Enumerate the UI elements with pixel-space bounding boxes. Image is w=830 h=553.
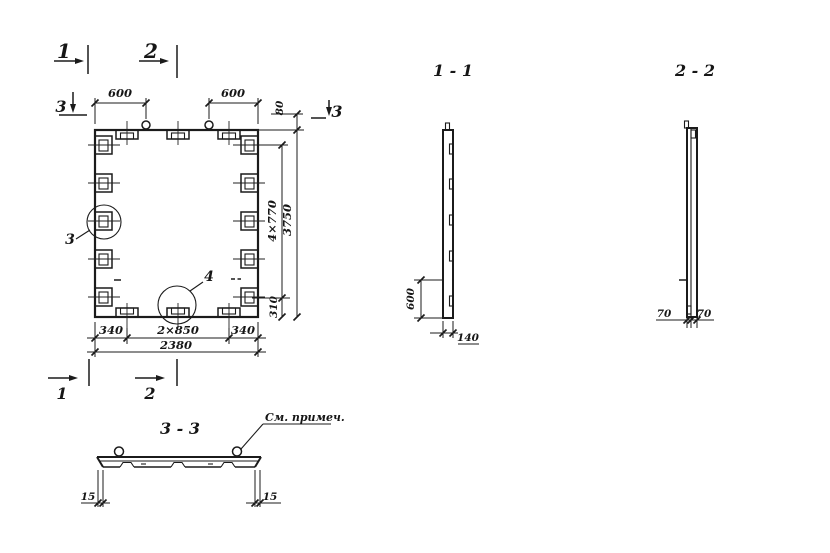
bottom-notch bbox=[221, 463, 235, 468]
plan-view: 3 4 600 600 bbox=[48, 39, 343, 403]
lifting-loop-icon bbox=[115, 447, 124, 456]
dim-4x770: 4×770 bbox=[265, 200, 279, 242]
marker-label: 2 bbox=[143, 384, 155, 403]
edge-insert bbox=[88, 212, 120, 230]
edge-insert bbox=[88, 174, 120, 192]
dim-600-left: 600 bbox=[108, 86, 132, 100]
lifting-loop-icon bbox=[142, 121, 150, 129]
note-text: См. примеч. bbox=[265, 411, 345, 424]
marker-label: 2 bbox=[143, 39, 158, 63]
insert-notch bbox=[167, 121, 189, 145]
drawing-sheet: 3 4 600 600 bbox=[0, 0, 830, 553]
panel-outline bbox=[95, 130, 258, 317]
marker-label: 3 bbox=[55, 97, 66, 116]
plan-right-dimensions: 80 4×770 3750 310 bbox=[252, 100, 304, 320]
section-view-2-2: 2 - 2 70 70 bbox=[656, 61, 715, 328]
top-edge-inserts bbox=[116, 121, 240, 145]
dim-2380: 2380 bbox=[159, 338, 192, 352]
arrow-down-icon bbox=[70, 104, 76, 113]
section-marker-2-bottom: 2 bbox=[135, 359, 177, 403]
edge-insert bbox=[233, 212, 265, 230]
arrow-right-icon bbox=[160, 58, 169, 64]
dim-340-right: 340 bbox=[231, 323, 255, 337]
insert-notch bbox=[218, 121, 240, 145]
section-marker-3-right: 3 bbox=[311, 100, 343, 121]
dim-140: 140 bbox=[457, 332, 480, 344]
section-3-3-dimensions: 15 15 bbox=[81, 470, 281, 507]
section-view-1-1: 1 - 1 600 140 bbox=[405, 61, 480, 344]
edge-insert bbox=[88, 288, 120, 306]
dim-70-left: 70 bbox=[657, 308, 672, 320]
section-marker-3-left: 3 bbox=[55, 92, 87, 116]
dim-600: 600 bbox=[405, 287, 417, 310]
marker-label: 1 bbox=[56, 384, 67, 403]
marker-label: 3 bbox=[331, 102, 342, 121]
marker-label: 1 bbox=[57, 39, 71, 63]
insert-notch bbox=[116, 121, 138, 145]
note-leader: См. примеч. bbox=[241, 411, 345, 449]
edge-insert bbox=[233, 250, 265, 268]
drawing-canvas: 3 4 600 600 bbox=[0, 0, 830, 553]
section-3-3-body bbox=[97, 447, 261, 467]
section-title: 3 - 3 bbox=[160, 419, 200, 438]
dim-340-left: 340 bbox=[99, 323, 123, 337]
section-marker-1-top: 1 bbox=[54, 39, 88, 74]
dim-3750: 3750 bbox=[280, 204, 294, 236]
callout-label: 4 bbox=[204, 269, 214, 285]
section-title: 1 - 1 bbox=[433, 61, 473, 80]
lifting-loop-icon bbox=[233, 447, 242, 456]
callout-label: 3 bbox=[65, 232, 75, 248]
section-2-2-body bbox=[687, 128, 697, 317]
section-title: 2 - 2 bbox=[674, 61, 715, 80]
bottom-notch bbox=[171, 463, 185, 468]
bottom-notch bbox=[120, 463, 134, 468]
edge-insert bbox=[233, 288, 265, 306]
arrow-right-icon bbox=[69, 375, 78, 381]
dim-70-right: 70 bbox=[697, 308, 712, 320]
loop-stub bbox=[685, 121, 689, 128]
section-marker-2-top: 2 bbox=[139, 39, 177, 78]
plan-top-dimensions: 600 600 bbox=[92, 86, 262, 124]
dim-80: 80 bbox=[274, 100, 286, 115]
loop-stub bbox=[446, 123, 450, 130]
dim-2x850: 2×850 bbox=[156, 323, 199, 337]
dim-15-left: 15 bbox=[81, 491, 96, 503]
section-view-3-3: 3 - 3 См. примеч. bbox=[81, 411, 345, 507]
edge-insert bbox=[88, 136, 120, 154]
section-1-1-body bbox=[443, 130, 453, 318]
plan-bottom-dimensions: 340 2×850 340 2380 bbox=[87, 322, 266, 357]
dim-310: 310 bbox=[268, 295, 280, 318]
dim-15-right: 15 bbox=[263, 491, 278, 503]
section-marker-1-bottom: 1 bbox=[48, 359, 89, 403]
right-edge-inserts bbox=[233, 136, 265, 306]
arrow-right-icon bbox=[156, 375, 165, 381]
top-notch bbox=[691, 130, 696, 138]
edge-insert bbox=[88, 250, 120, 268]
arrow-right-icon bbox=[75, 58, 84, 64]
edge-insert bbox=[233, 174, 265, 192]
section-2-2-dimensions: 70 70 bbox=[656, 308, 714, 328]
lifting-loop-icon bbox=[205, 121, 213, 129]
dim-600-right: 600 bbox=[221, 86, 245, 100]
